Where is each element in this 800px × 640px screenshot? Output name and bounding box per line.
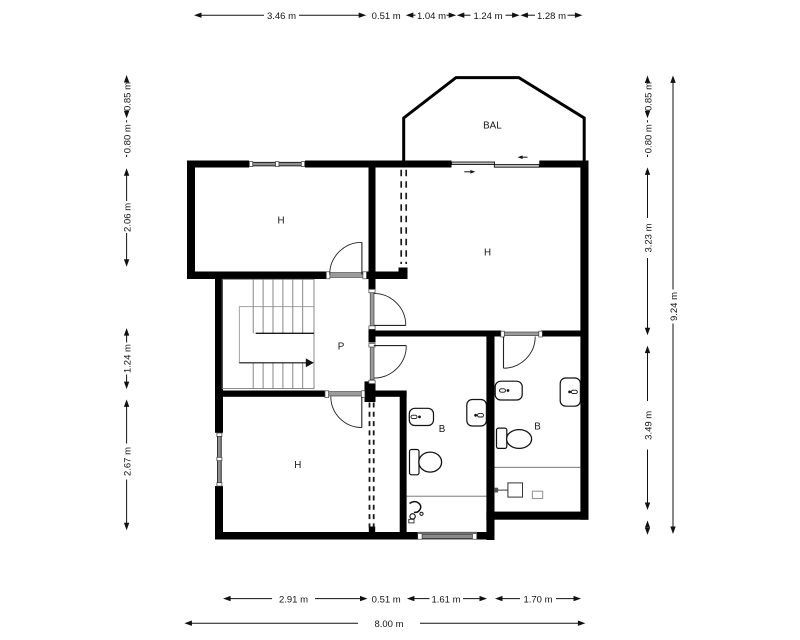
svg-text:2.67 m: 2.67 m (122, 447, 133, 476)
svg-text:0.51 m: 0.51 m (372, 595, 401, 606)
svg-text:H: H (277, 215, 284, 226)
svg-text:P: P (338, 341, 345, 352)
svg-text:9.24 m: 9.24 m (669, 292, 680, 321)
svg-text:2.06 m: 2.06 m (123, 203, 134, 232)
svg-text:H: H (484, 248, 491, 259)
svg-text:0.80 m: 0.80 m (643, 124, 654, 153)
svg-text:0.80 m: 0.80 m (123, 124, 134, 153)
svg-text:3.23 m: 3.23 m (643, 223, 654, 252)
svg-text:1.61 m: 1.61 m (431, 595, 460, 606)
svg-text:1.70 m: 1.70 m (523, 595, 552, 606)
svg-text:1.28 m: 1.28 m (537, 11, 566, 22)
svg-text:BAL: BAL (483, 120, 502, 131)
svg-text:0.51 m: 0.51 m (372, 11, 401, 22)
svg-text:B: B (439, 424, 446, 435)
svg-text:1.24 m: 1.24 m (473, 11, 502, 22)
svg-text:0.85 m: 0.85 m (643, 82, 654, 111)
svg-text:2.91 m: 2.91 m (279, 595, 308, 606)
svg-text:H: H (294, 460, 301, 471)
svg-text:3.46 m: 3.46 m (267, 11, 296, 22)
svg-text:3.49 m: 3.49 m (643, 411, 654, 440)
svg-text:1.04 m: 1.04 m (417, 11, 446, 22)
svg-text:0.85 m: 0.85 m (123, 82, 134, 111)
svg-text:8.00 m: 8.00 m (374, 619, 403, 630)
svg-text:1.24 m: 1.24 m (122, 344, 133, 373)
svg-text:B: B (534, 421, 541, 432)
